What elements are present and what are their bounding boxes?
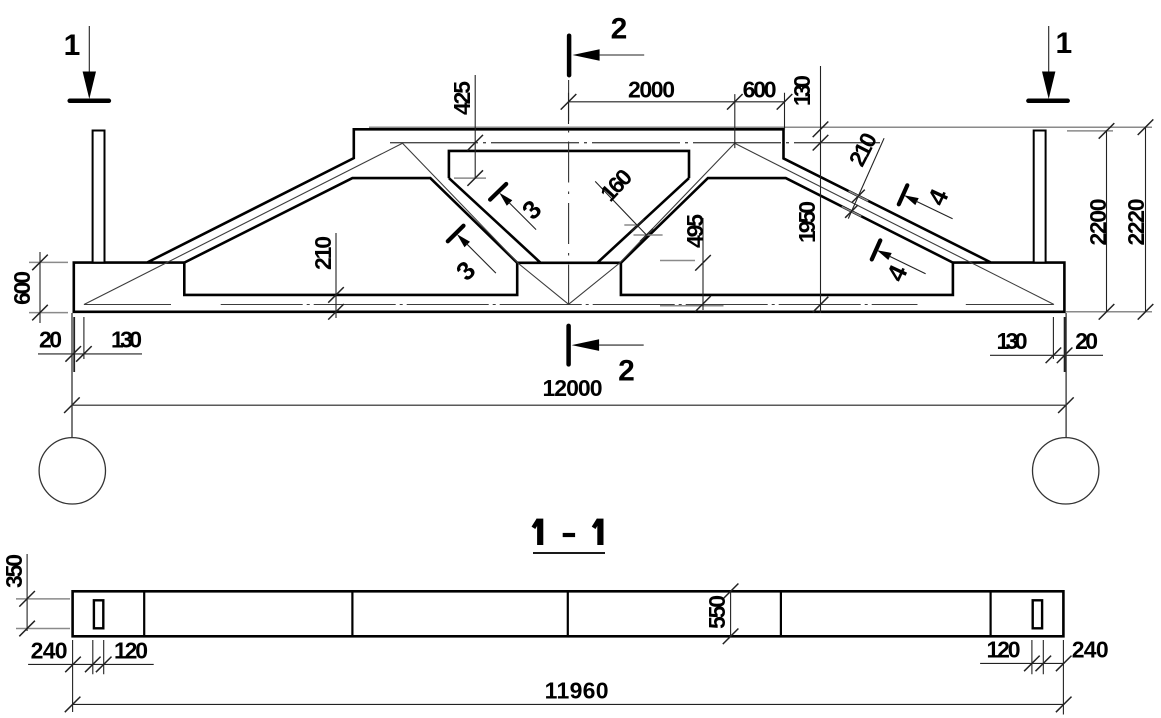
svg-text:2000: 2000	[628, 76, 675, 102]
svg-text:12000: 12000	[543, 375, 603, 401]
svg-text:120: 120	[987, 637, 1021, 663]
svg-text:20: 20	[1075, 328, 1098, 354]
svg-text:1: 1	[64, 29, 81, 62]
svg-text:350: 350	[1, 554, 27, 588]
svg-text:2: 2	[618, 355, 635, 388]
svg-text:425: 425	[449, 81, 475, 115]
svg-text:130: 130	[789, 75, 815, 106]
svg-text:600: 600	[9, 271, 35, 305]
svg-text:2200: 2200	[1085, 199, 1111, 246]
svg-text:1: 1	[1056, 27, 1073, 60]
svg-text:600: 600	[743, 76, 777, 102]
svg-text:240: 240	[1072, 637, 1109, 663]
svg-text:11960: 11960	[545, 678, 609, 704]
svg-text:550: 550	[704, 595, 730, 629]
svg-text:1950: 1950	[794, 201, 820, 243]
svg-text:2220: 2220	[1123, 199, 1149, 246]
svg-text:2: 2	[611, 12, 628, 45]
svg-text:20: 20	[39, 327, 62, 353]
svg-text:240: 240	[31, 638, 68, 664]
svg-text:210: 210	[310, 236, 336, 270]
svg-text:120: 120	[114, 638, 148, 664]
svg-text:130: 130	[997, 328, 1028, 354]
svg-text:130: 130	[111, 327, 142, 353]
svg-text:495: 495	[682, 214, 708, 248]
